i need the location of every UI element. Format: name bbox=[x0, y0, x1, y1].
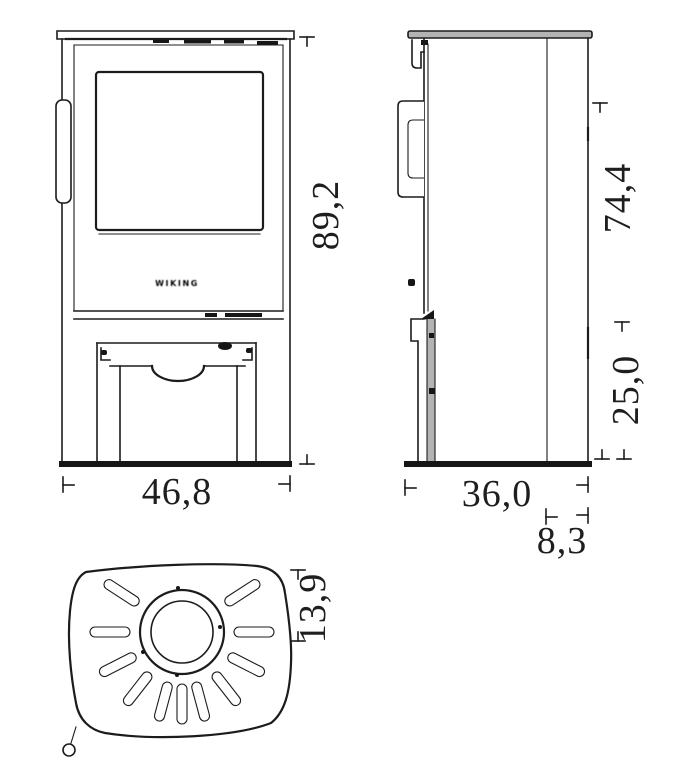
latch-dot bbox=[218, 342, 232, 350]
vent-slots bbox=[90, 578, 274, 724]
side-top-plate bbox=[408, 31, 592, 38]
brand-logo: WIKING bbox=[146, 279, 208, 288]
dim-front-width: 46,8 bbox=[117, 472, 237, 512]
front-view-drawing bbox=[56, 31, 314, 492]
top-view-drawing bbox=[63, 564, 305, 756]
door-window bbox=[96, 72, 263, 230]
dim-side-upper-height: 74,4 bbox=[598, 138, 638, 258]
technical-drawing-canvas: WIKING 46,8 89,2 74,4 25,0 36,0 8,3 13,9 bbox=[0, 0, 683, 766]
base-handle-arc bbox=[152, 366, 204, 381]
dim-front-height: 89,2 bbox=[306, 155, 346, 275]
dim-side-rear-offset: 8,3 bbox=[502, 521, 622, 561]
side-view-drawing bbox=[398, 31, 631, 524]
dim-side-depth: 36,0 bbox=[437, 474, 557, 514]
door-handle-side bbox=[398, 101, 424, 197]
flue-collar-outer bbox=[140, 590, 224, 674]
side-base-line bbox=[404, 461, 592, 467]
front-top-plate bbox=[57, 31, 294, 39]
front-base-line bbox=[59, 461, 292, 467]
handle-knob-top bbox=[63, 744, 75, 756]
flue-collar-inner bbox=[151, 601, 213, 663]
dim-side-base-height: 25,0 bbox=[606, 330, 646, 450]
door-handle-front bbox=[56, 100, 71, 203]
dim-top-flue-center: 13,9 bbox=[293, 548, 333, 668]
stove-drawing bbox=[0, 0, 683, 766]
